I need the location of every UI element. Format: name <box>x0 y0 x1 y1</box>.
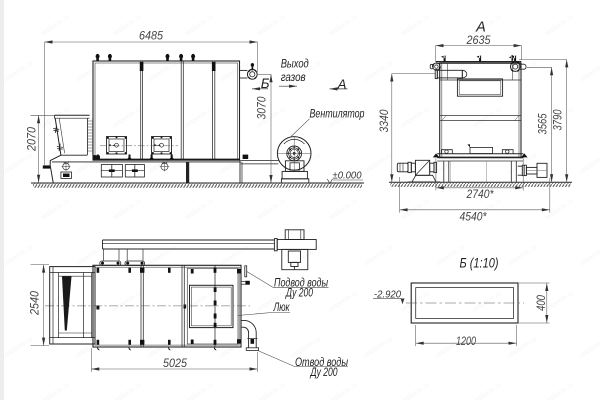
svg-text:2635: 2635 <box>466 35 491 47</box>
svg-text:А: А <box>337 77 347 92</box>
svg-text:400: 400 <box>536 294 548 311</box>
svg-text:5025: 5025 <box>163 358 188 370</box>
svg-text:2540: 2540 <box>30 290 42 315</box>
svg-text:±0.000: ±0.000 <box>333 169 362 181</box>
svg-text:Выход: Выход <box>281 59 309 71</box>
svg-text:3070: 3070 <box>257 96 269 120</box>
svg-text:Ду 200: Ду 200 <box>285 287 314 299</box>
svg-text:газов: газов <box>281 72 306 84</box>
svg-text:6485: 6485 <box>139 31 164 43</box>
svg-text:3565: 3565 <box>538 113 550 134</box>
svg-text:А: А <box>475 20 486 36</box>
svg-text:Вентилятор: Вентилятор <box>310 109 365 121</box>
svg-text:2070: 2070 <box>27 126 39 151</box>
svg-text:Б (1:10): Б (1:10) <box>460 256 499 271</box>
svg-text:4540*: 4540* <box>460 212 487 224</box>
svg-text:1200: 1200 <box>456 336 476 348</box>
svg-text:Ду 200: Ду 200 <box>309 367 338 379</box>
svg-text:2740*: 2740* <box>466 189 494 201</box>
svg-text:3340: 3340 <box>379 109 391 133</box>
svg-text:3790: 3790 <box>553 109 565 130</box>
